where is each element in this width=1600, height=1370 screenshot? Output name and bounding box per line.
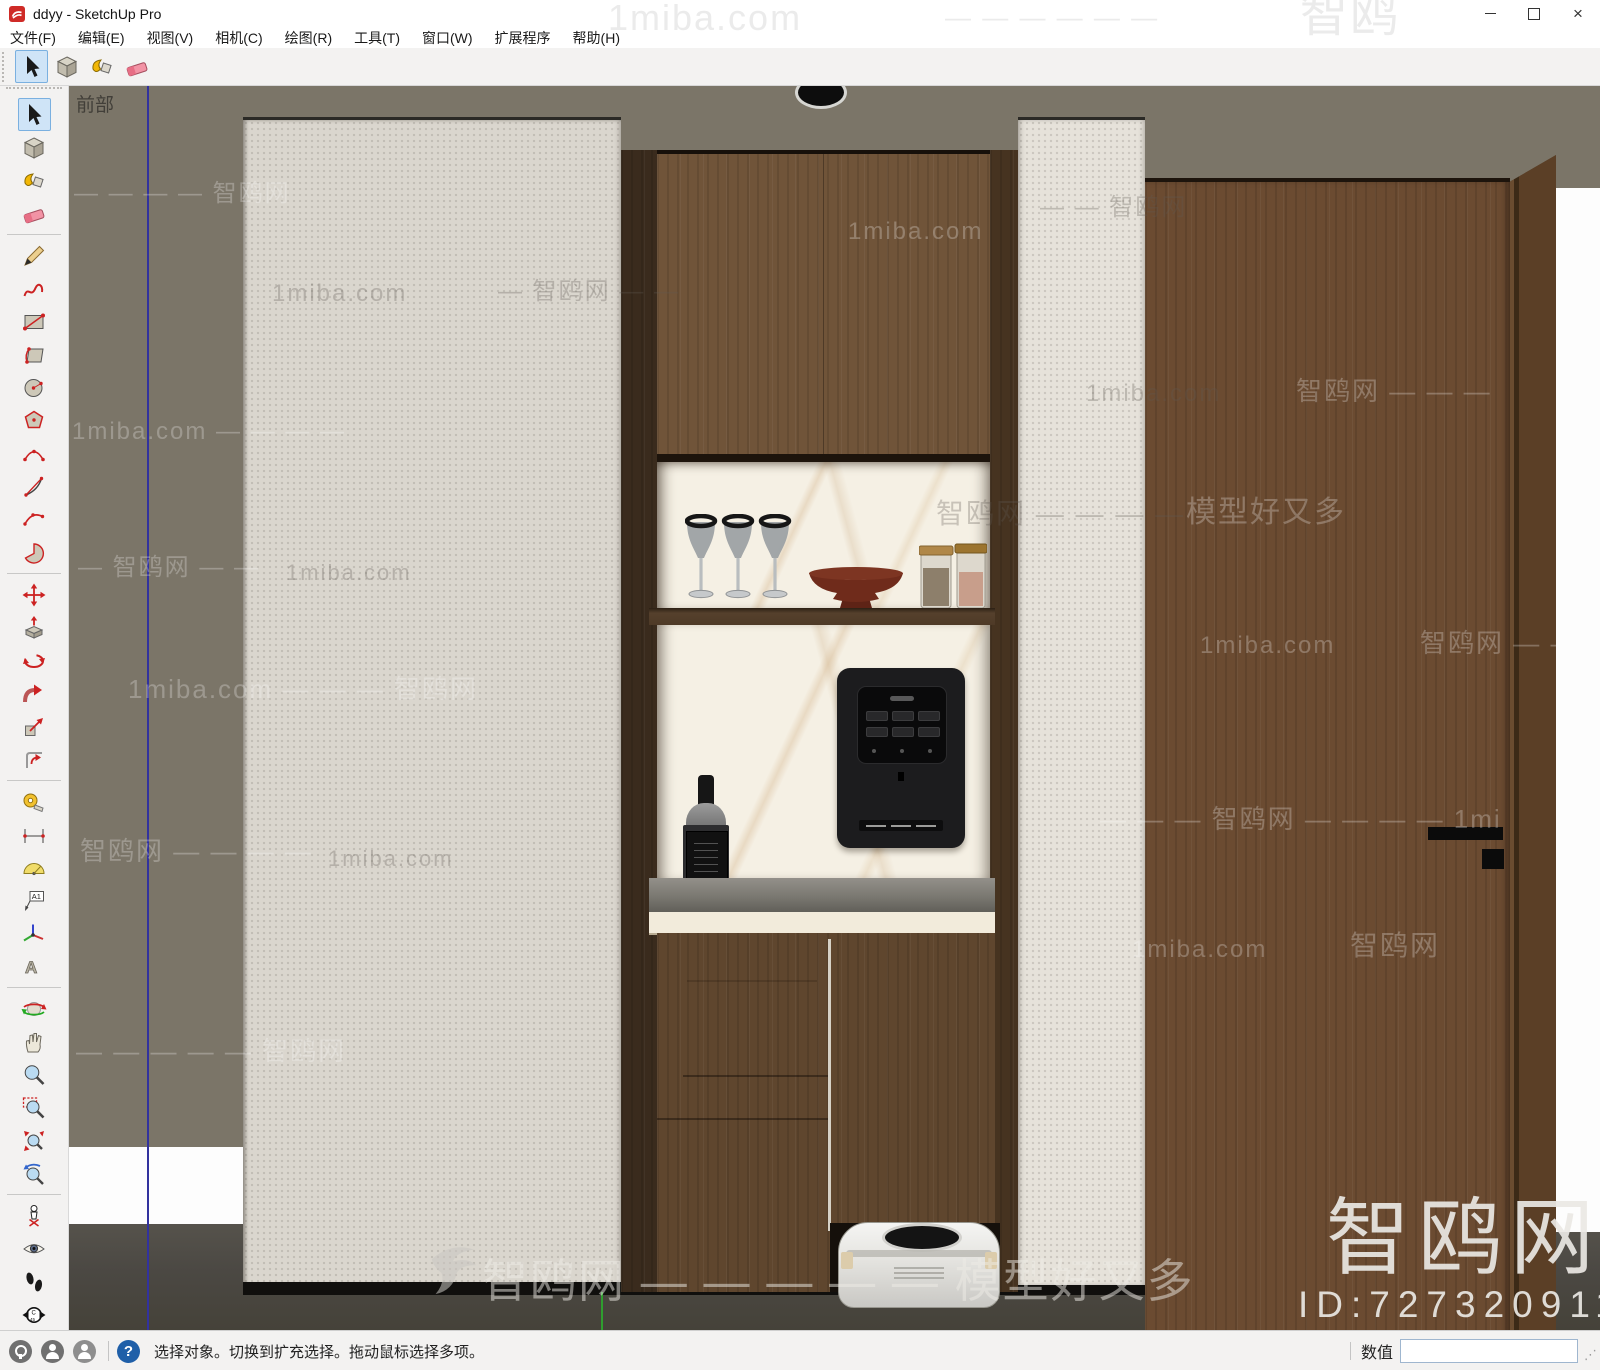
rectangle-icon	[21, 309, 47, 335]
robot-vacuum[interactable]	[838, 1222, 1000, 1308]
wood-door[interactable]	[1145, 178, 1510, 1330]
toolbar-separator	[7, 780, 61, 781]
three-point-arc-icon	[21, 507, 47, 533]
two-point-arc-tool-button[interactable]	[18, 437, 51, 470]
tape-measure-icon	[21, 789, 47, 815]
zoom-extents-tool-button[interactable]	[18, 1124, 51, 1157]
menu-draw[interactable]: 绘图(R)	[285, 28, 332, 48]
title-bar: ddyy - SketchUp Pro ×	[0, 0, 1600, 27]
door-handle[interactable]	[1428, 827, 1503, 840]
resize-grip[interactable]: ⋰	[1584, 1347, 1597, 1363]
follow-me-tool-button[interactable]	[18, 677, 51, 710]
polygon-icon	[21, 408, 47, 434]
walk-tool-button[interactable]	[18, 1265, 51, 1298]
open-door-leaf[interactable]	[1510, 155, 1556, 1330]
eraser-button[interactable]	[120, 50, 153, 83]
whiskey-bottle[interactable]	[681, 775, 731, 892]
pie-tool-button[interactable]	[18, 536, 51, 569]
make-component-button[interactable]	[18, 131, 51, 164]
eraser-icon	[124, 54, 150, 80]
toolbar-separator	[7, 987, 61, 988]
toolbar-separator	[7, 234, 61, 235]
circle-icon	[21, 375, 47, 401]
eraser-icon	[21, 201, 47, 227]
large-tool-set	[0, 85, 69, 1330]
menu-tools[interactable]: 工具(T)	[354, 28, 400, 48]
toolbar-separator	[7, 573, 61, 574]
vacuum-lidar-dome	[882, 1223, 962, 1252]
dispenser-logo	[890, 696, 914, 701]
statusbar-divider	[1350, 1342, 1351, 1360]
menu-file[interactable]: 文件(F)	[10, 28, 56, 48]
axes-tool-button[interactable]	[18, 917, 51, 950]
measurements-input[interactable]	[1400, 1339, 1578, 1363]
close-button[interactable]: ×	[1556, 0, 1600, 27]
question-icon: ?	[124, 1343, 133, 1360]
make-component-icon	[21, 135, 47, 161]
upper-cabinet-door[interactable]	[657, 154, 990, 454]
viewport-canvas[interactable]: 前部	[68, 85, 1600, 1330]
storage-jars[interactable]	[919, 542, 987, 608]
text-tool-icon	[21, 888, 47, 914]
toolbar-drag-handle[interactable]	[2, 52, 10, 82]
credits-button[interactable]	[41, 1340, 64, 1363]
select-tool-button[interactable]	[15, 50, 48, 83]
water-dispenser[interactable]	[837, 668, 965, 848]
countertop-marble-edge	[649, 912, 995, 935]
zoom-icon	[21, 1062, 47, 1088]
paint-bucket-button[interactable]	[18, 164, 51, 197]
minimize-icon	[1485, 13, 1496, 15]
dimension-icon	[21, 822, 47, 848]
freehand-icon	[21, 276, 47, 302]
protractor-icon	[21, 855, 47, 881]
pan-tool-button[interactable]	[18, 1025, 51, 1058]
zoom-tool-button[interactable]	[18, 1058, 51, 1091]
text-tool-button[interactable]	[18, 884, 51, 917]
walk-footprints-icon	[21, 1269, 47, 1295]
pedestal-bowl[interactable]	[807, 566, 905, 608]
door-lock	[1482, 849, 1504, 869]
move-icon	[21, 582, 47, 608]
pencil-icon	[21, 243, 47, 269]
menu-bar: 文件(F) 编辑(E) 视图(V) 相机(C) 绘图(R) 工具(T) 窗口(W…	[0, 27, 1600, 49]
polygon-tool-button[interactable]	[18, 404, 51, 437]
3d-text-tool-button[interactable]	[18, 950, 51, 983]
zoom-extents-icon	[21, 1128, 47, 1154]
push-pull-icon	[21, 615, 47, 641]
vacuum-bumper	[846, 1250, 992, 1257]
pie-icon	[21, 540, 47, 566]
select-icon	[21, 102, 47, 128]
offset-icon	[21, 747, 47, 773]
make-component-button[interactable]	[50, 50, 83, 83]
line-tool-button[interactable]	[18, 239, 51, 272]
background-void	[1556, 188, 1600, 1232]
sketchup-logo-icon	[9, 6, 25, 22]
offset-tool-button[interactable]	[18, 743, 51, 776]
protractor-tool-button[interactable]	[18, 851, 51, 884]
zoom-previous-tool-button[interactable]	[18, 1157, 51, 1190]
3d-text-icon	[21, 954, 47, 980]
avatar-icon	[81, 1344, 88, 1351]
zoom-window-tool-button[interactable]	[18, 1091, 51, 1124]
toolbar-drag-handle[interactable]	[6, 87, 62, 95]
wine-cabinet[interactable]	[621, 150, 1018, 1292]
select-tool-button[interactable]	[18, 98, 51, 131]
status-message: 选择对象。切换到扩充选择。拖动鼠标选择多项。	[154, 1341, 484, 1362]
menu-extensions[interactable]: 扩展程序	[495, 28, 551, 48]
compass-tool-button[interactable]	[18, 1298, 51, 1331]
two-point-arc-icon	[21, 441, 47, 467]
follow-me-icon	[21, 681, 47, 707]
status-bar: ? 选择对象。切换到扩充选择。拖动鼠标选择多项。 数值 ⋰	[0, 1330, 1600, 1370]
scale-tool-button[interactable]	[18, 710, 51, 743]
marble-pillar[interactable]	[1018, 117, 1145, 1285]
rotated-rectangle-tool-button[interactable]	[18, 338, 51, 371]
background-void	[68, 1147, 243, 1224]
orbit-icon	[21, 996, 47, 1022]
scale-icon	[21, 714, 47, 740]
freehand-tool-button[interactable]	[18, 272, 51, 305]
countertop-surface[interactable]	[649, 878, 995, 912]
push-pull-tool-button[interactable]	[18, 611, 51, 644]
orbit-tool-button[interactable]	[18, 992, 51, 1025]
position-camera-icon	[21, 1203, 47, 1229]
dispenser-spout	[898, 772, 904, 781]
look-around-tool-button[interactable]	[18, 1232, 51, 1265]
zoom-previous-icon	[21, 1161, 47, 1187]
maximize-icon	[1528, 8, 1540, 20]
arc-icon	[21, 474, 47, 500]
green-axis-line	[601, 1292, 603, 1330]
getting-started-toolbar	[0, 48, 1600, 86]
sketchup-window: ddyy - SketchUp Pro × 文件(F) 编辑(E) 视图(V) …	[0, 0, 1600, 1370]
rotate-tool-button[interactable]	[18, 644, 51, 677]
rectangle-tool-button[interactable]	[18, 305, 51, 338]
paint-bucket-button[interactable]	[85, 50, 118, 83]
menu-help[interactable]: 帮助(H)	[573, 28, 620, 48]
eraser-button[interactable]	[18, 197, 51, 230]
make-component-icon	[54, 54, 80, 80]
paint-bucket-icon	[89, 54, 115, 80]
drawer-seam	[657, 1118, 828, 1120]
stone-panel[interactable]	[243, 117, 621, 1285]
vacuum-latch	[841, 1252, 853, 1269]
axes-icon	[21, 921, 47, 947]
move-tool-button[interactable]	[18, 578, 51, 611]
ceiling-downlight[interactable]	[795, 85, 847, 109]
tape-measure-tool-button[interactable]	[18, 785, 51, 818]
drawer-seam	[683, 1075, 828, 1077]
close-icon: ×	[1573, 5, 1583, 22]
shelf-board[interactable]	[649, 608, 995, 625]
person-icon	[49, 1344, 56, 1351]
paint-bucket-icon	[21, 168, 47, 194]
position-camera-tool-button[interactable]	[18, 1199, 51, 1232]
arc-tool-button[interactable]	[18, 470, 51, 503]
menu-edit[interactable]: 编辑(E)	[78, 28, 125, 48]
circle-tool-button[interactable]	[18, 371, 51, 404]
zoom-window-icon	[21, 1095, 47, 1121]
dimension-tool-button[interactable]	[18, 818, 51, 851]
dispenser-tray	[859, 820, 943, 831]
menu-window[interactable]: 窗口(W)	[422, 28, 473, 48]
help-button[interactable]: ?	[117, 1340, 140, 1363]
pan-hand-icon	[21, 1029, 47, 1055]
geolocation-button[interactable]	[9, 1340, 32, 1363]
menu-camera[interactable]: 相机(C)	[215, 28, 262, 48]
vacuum-latch	[985, 1252, 997, 1269]
dispenser-control-panel	[857, 686, 947, 764]
cabinet-side-panel	[621, 150, 657, 1292]
drawer-seam	[687, 980, 817, 982]
statusbar-divider	[108, 1341, 109, 1361]
measurements-label: 数值	[1361, 1339, 1393, 1363]
compass-icon	[21, 1302, 47, 1328]
vacuum-label	[894, 1264, 944, 1279]
view-name-label: 前部	[76, 90, 114, 117]
look-around-eye-icon	[21, 1236, 47, 1262]
minimize-button[interactable]	[1468, 0, 1512, 27]
sign-in-button[interactable]	[73, 1340, 96, 1363]
toolbar-separator	[7, 1194, 61, 1195]
display-shelf-niche[interactable]	[657, 462, 990, 608]
wine-glasses[interactable]	[685, 514, 805, 608]
rotated-rectangle-icon	[21, 342, 47, 368]
maximize-button[interactable]	[1512, 0, 1556, 27]
window-title: ddyy - SketchUp Pro	[33, 6, 161, 22]
menu-view[interactable]: 视图(V)	[147, 28, 194, 48]
select-icon	[19, 54, 45, 80]
door-gap	[828, 939, 831, 1231]
rotate-icon	[21, 648, 47, 674]
blue-axis-line	[147, 85, 149, 1330]
three-point-arc-tool-button[interactable]	[18, 503, 51, 536]
